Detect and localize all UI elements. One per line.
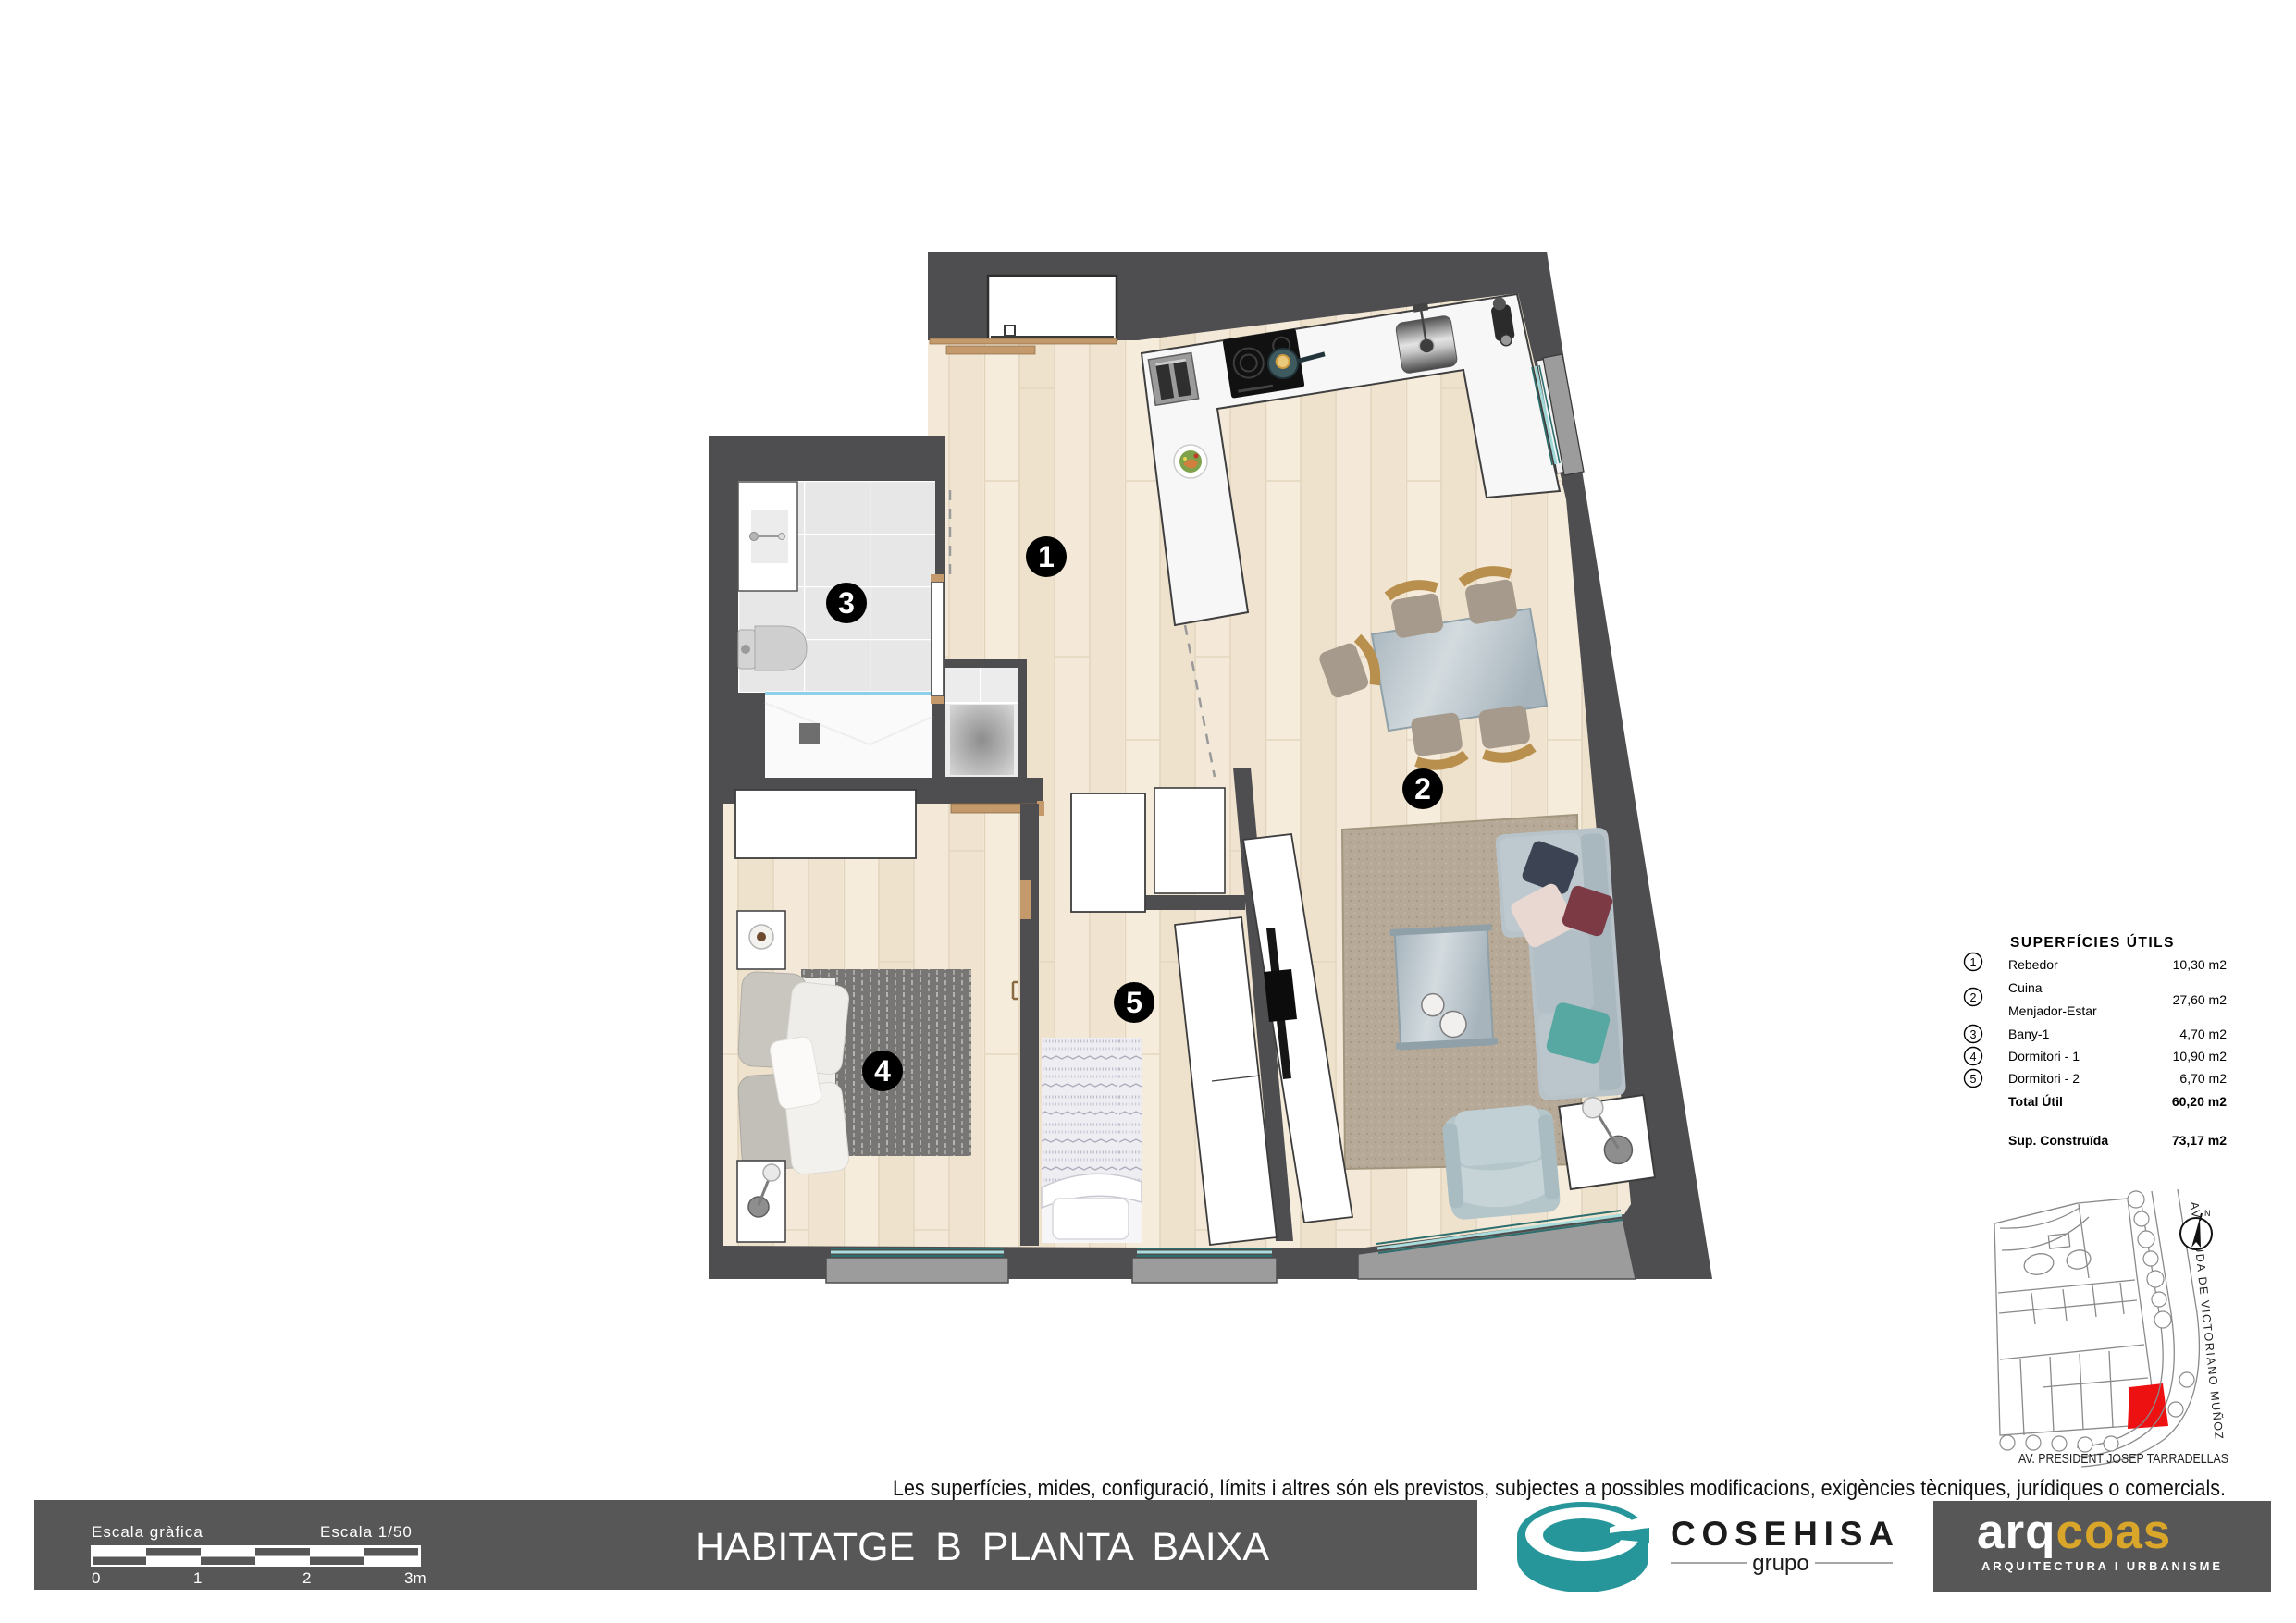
svg-text:6,70 m2: 6,70 m2	[2179, 1071, 2227, 1086]
svg-text:2: 2	[1414, 772, 1431, 805]
svg-text:grupo: grupo	[1752, 1551, 1808, 1576]
svg-text:2: 2	[1970, 991, 1977, 1004]
svg-text:4,70 m2: 4,70 m2	[2179, 1027, 2227, 1041]
svg-text:Dormitori - 1: Dormitori - 1	[2008, 1049, 2080, 1064]
svg-text:Sup. Construïda: Sup. Construïda	[2008, 1133, 2108, 1148]
svg-text:Menjador-Estar: Menjador-Estar	[2008, 1003, 2097, 1018]
svg-text:27,60 m2: 27,60 m2	[2173, 992, 2228, 1007]
svg-text:60,20 m2: 60,20 m2	[2172, 1094, 2227, 1109]
svg-text:Cuina: Cuina	[2008, 980, 2043, 995]
svg-text:Rebedor: Rebedor	[2008, 957, 2058, 972]
svg-text:1: 1	[1038, 540, 1055, 573]
svg-text:10,90 m2: 10,90 m2	[2173, 1049, 2228, 1064]
svg-text:10,30 m2: 10,30 m2	[2173, 957, 2228, 972]
svg-text:4: 4	[874, 1054, 891, 1088]
svg-text:1: 1	[1970, 956, 1977, 969]
svg-text:SUPERFÍCIES ÚTILS: SUPERFÍCIES ÚTILS	[2010, 934, 2175, 951]
svg-text:3m: 3m	[404, 1569, 426, 1587]
svg-text:5: 5	[1970, 1073, 1977, 1086]
svg-text:COSEHISA: COSEHISA	[1671, 1515, 1895, 1553]
svg-text:2: 2	[302, 1569, 311, 1587]
svg-text:ARQUITECTURA I URBANISME: ARQUITECTURA I URBANISME	[1981, 1559, 2222, 1573]
svg-text:Dormitori - 2: Dormitori - 2	[2008, 1071, 2080, 1086]
svg-text:3: 3	[838, 586, 855, 620]
svg-text:Les superfícies, mides, config: Les superfícies, mides, configuració, lí…	[893, 1476, 2226, 1501]
svg-text:73,17 m2: 73,17 m2	[2172, 1133, 2227, 1148]
svg-text:0: 0	[92, 1569, 100, 1587]
svg-text:Total Útil: Total Útil	[2008, 1093, 2063, 1109]
svg-text:Escala gràfica: Escala gràfica	[92, 1523, 204, 1541]
svg-text:Escala 1/50: Escala 1/50	[320, 1523, 413, 1541]
svg-text:arqcoas: arqcoas	[1977, 1505, 2171, 1559]
svg-text:5: 5	[1126, 986, 1142, 1019]
svg-text:1: 1	[193, 1569, 202, 1587]
svg-text:AV. PRESIDENT JOSEP TARRADE: AV. PRESIDENT JOSEP TARRADELLAS	[2018, 1452, 2228, 1467]
svg-text:4: 4	[1970, 1051, 1977, 1064]
svg-text:N: N	[2204, 1209, 2211, 1218]
svg-text:3: 3	[1970, 1028, 1977, 1041]
svg-text:Bany-1: Bany-1	[2008, 1027, 2050, 1041]
svg-text:HABITATGE B PLANTA BAIXA: HABITATGE B PLANTA BAIXA	[696, 1525, 1269, 1569]
